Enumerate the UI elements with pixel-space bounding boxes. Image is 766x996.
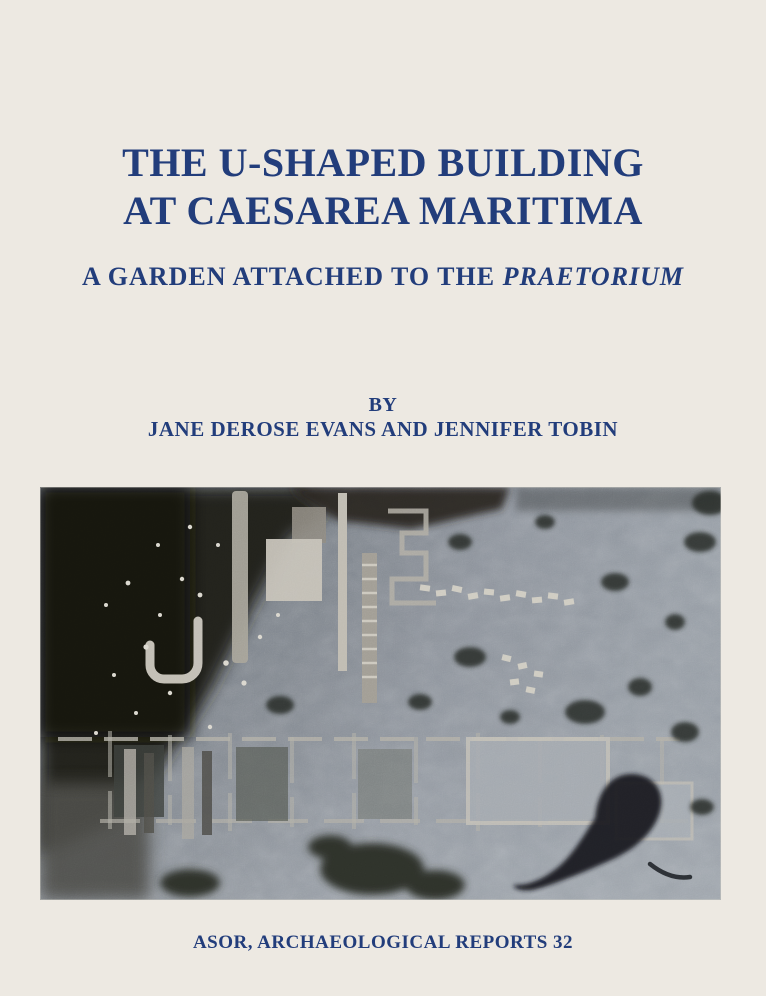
- series-line: ASOR, ARCHAEOLOGICAL REPORTS 32: [0, 932, 766, 954]
- subtitle-text: A GARDEN ATTACHED TO THE: [82, 262, 503, 291]
- aerial-photo-graphic: [40, 487, 721, 900]
- title-line-1: THE U-SHAPED BUILDING: [0, 139, 766, 187]
- authors: JANE DEROSE EVANS AND JENNIFER TOBIN: [0, 417, 766, 442]
- title-line-2: AT CAESAREA MARITIMA: [0, 187, 766, 235]
- byline: BY: [0, 393, 766, 417]
- subtitle-emphasis: PRAETORIUM: [503, 262, 684, 291]
- aerial-photo: [40, 487, 721, 900]
- book-subtitle: A GARDEN ATTACHED TO THE PRAETORIUM: [0, 262, 766, 292]
- book-title: THE U-SHAPED BUILDING AT CAESAREA MARITI…: [0, 139, 766, 235]
- book-cover: THE U-SHAPED BUILDING AT CAESAREA MARITI…: [0, 0, 766, 996]
